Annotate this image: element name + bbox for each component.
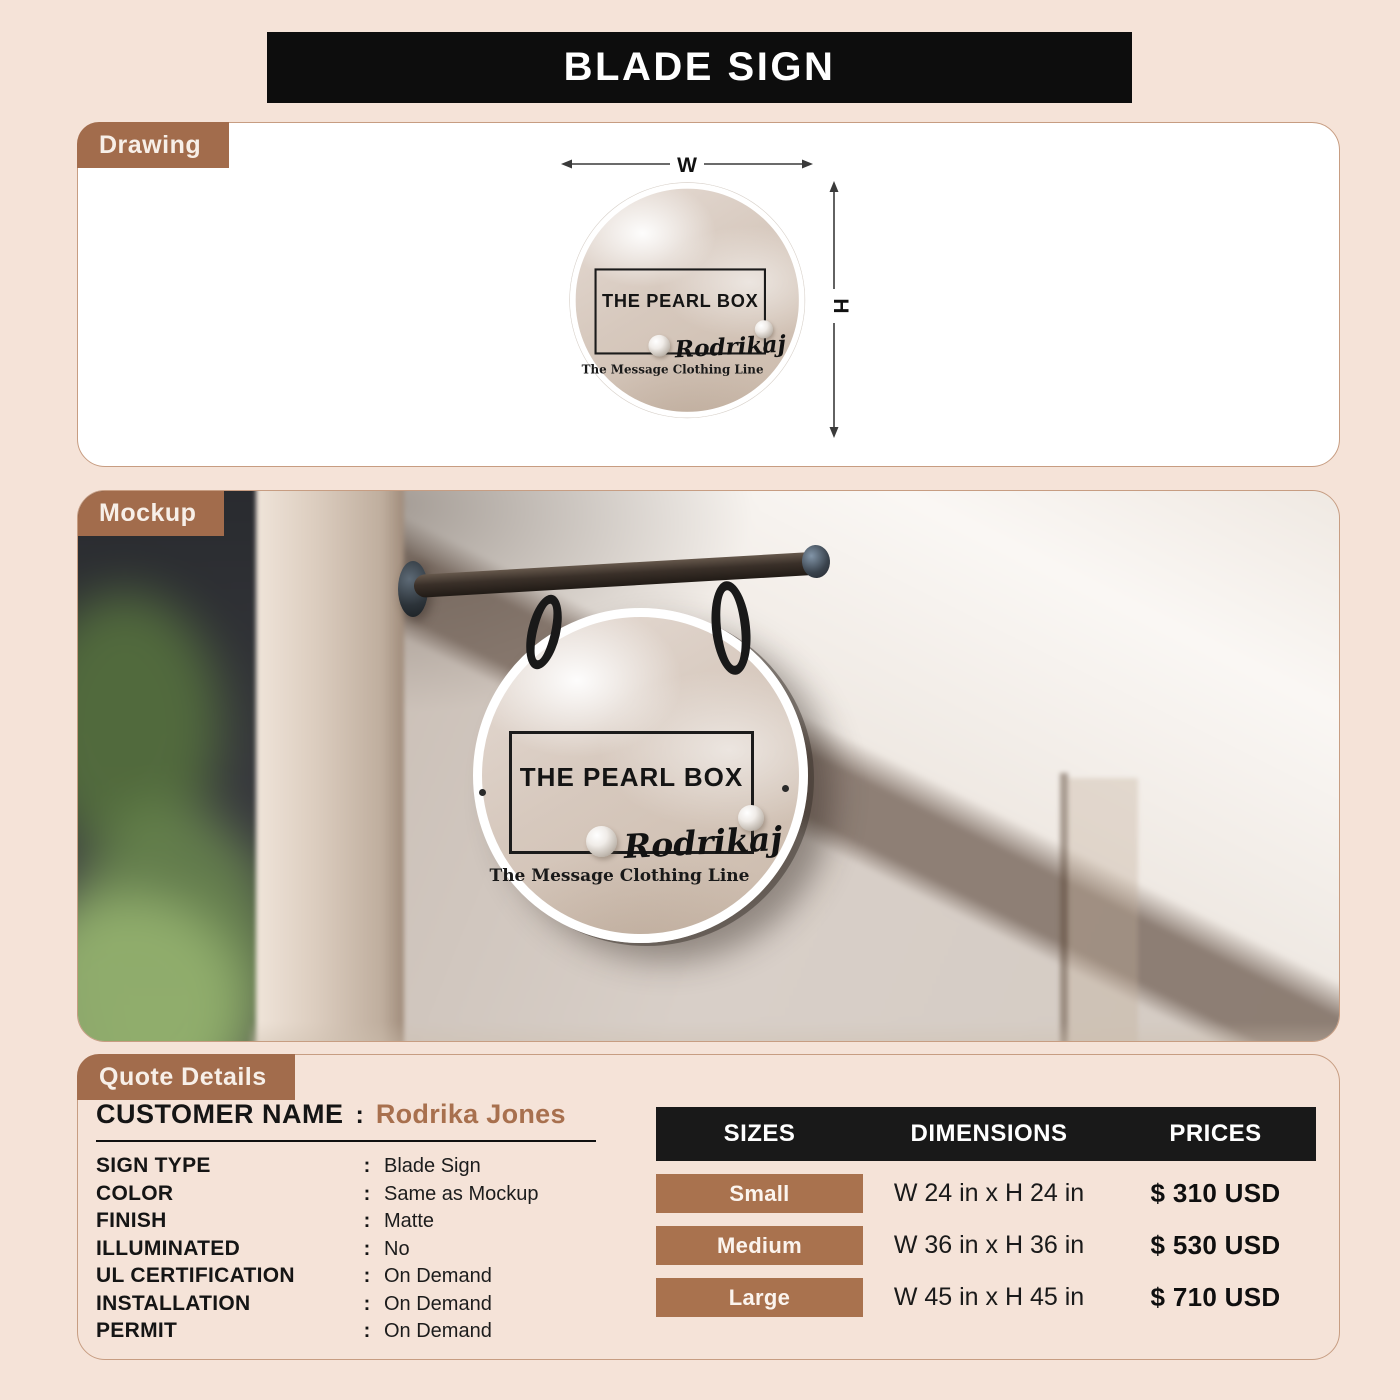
- spec-separator: :: [354, 1293, 380, 1315]
- owner-script-name: Rodrikaj: [663, 329, 797, 363]
- spec-separator: :: [354, 1238, 380, 1260]
- spec-separator: :: [354, 1320, 380, 1342]
- price-value: $ 310 USD: [1115, 1178, 1316, 1209]
- width-dimension-label: W: [677, 154, 697, 177]
- table-row: Large W 45 in x H 45 in $ 710 USD: [656, 1278, 1316, 1317]
- quote-tab-label: Quote Details: [99, 1063, 267, 1092]
- spec-value: No: [380, 1238, 539, 1260]
- mockup-panel: THE PEARL BOX Rodrikaj The Message Cloth…: [77, 490, 1340, 1042]
- table-row: Medium W 36 in x H 36 in $ 530 USD: [656, 1226, 1316, 1265]
- page-title: BLADE SIGN: [564, 45, 836, 90]
- customer-name-separator: :: [356, 1101, 364, 1130]
- drawing-panel: Drawing W H THE PEARL BOX Rodr: [77, 122, 1340, 467]
- door-frame: [1060, 773, 1068, 1042]
- size-badge: Small: [656, 1174, 863, 1213]
- drawing-section-tab: Drawing: [77, 122, 229, 168]
- sign-tagline: The Message Clothing Line: [576, 363, 770, 377]
- spec-label: INSTALLATION: [96, 1293, 354, 1315]
- title-banner: BLADE SIGN: [267, 32, 1132, 103]
- quote-section-tab: Quote Details: [77, 1054, 295, 1100]
- brand-name: THE PEARL BOX: [592, 290, 768, 312]
- sign-drawing: THE PEARL BOX Rodrikaj The Message Cloth…: [570, 183, 805, 418]
- spec-label: PERMIT: [96, 1320, 354, 1342]
- spec-separator: :: [354, 1155, 380, 1177]
- brand-name: THE PEARL BOX: [506, 762, 757, 793]
- column-header-prices: PRICES: [1115, 1120, 1316, 1148]
- price-value: $ 710 USD: [1115, 1282, 1316, 1313]
- spec-value: Matte: [380, 1210, 539, 1232]
- spec-label: ILLUMINATED: [96, 1238, 354, 1260]
- dimensions-value: W 45 in x H 45 in: [863, 1283, 1115, 1312]
- spec-value: Blade Sign: [380, 1155, 539, 1177]
- pricing-table: SIZES DIMENSIONS PRICES Small W 24 in x …: [656, 1107, 1316, 1330]
- spec-value: On Demand: [380, 1320, 539, 1342]
- dimensions-value: W 36 in x H 36 in: [863, 1231, 1115, 1260]
- height-dimension-label: H: [829, 298, 852, 313]
- spec-label: UL CERTIFICATION: [96, 1265, 354, 1287]
- mount-screw-icon: [782, 785, 789, 792]
- column-header-sizes: SIZES: [656, 1120, 863, 1148]
- spec-list: SIGN TYPE : Blade Sign COLOR : Same as M…: [96, 1155, 539, 1342]
- column-header-dimensions: DIMENSIONS: [863, 1120, 1115, 1148]
- spec-separator: :: [354, 1183, 380, 1205]
- floor: [250, 1022, 1340, 1042]
- spec-value: Same as Mockup: [380, 1183, 539, 1205]
- size-badge: Large: [656, 1278, 863, 1317]
- spec-label: COLOR: [96, 1183, 354, 1205]
- customer-name-value: Rodrika Jones: [376, 1099, 566, 1130]
- price-value: $ 530 USD: [1115, 1230, 1316, 1261]
- drawing-tab-label: Drawing: [99, 131, 201, 160]
- sign-face: THE PEARL BOX Rodrikaj The Message Cloth…: [570, 183, 805, 418]
- pricing-table-header: SIZES DIMENSIONS PRICES: [656, 1107, 1316, 1161]
- door-panel: [1068, 778, 1138, 1042]
- mount-screw-icon: [479, 789, 486, 796]
- quote-details-panel: Quote Details CUSTOMER NAME : Rodrika Jo…: [77, 1054, 1340, 1360]
- spec-separator: :: [354, 1265, 380, 1287]
- spec-label: FINISH: [96, 1210, 354, 1232]
- spec-value: On Demand: [380, 1293, 539, 1315]
- spec-separator: :: [354, 1210, 380, 1232]
- spec-value: On Demand: [380, 1265, 539, 1287]
- table-row: Small W 24 in x H 24 in $ 310 USD: [656, 1174, 1316, 1213]
- sign-face: THE PEARL BOX Rodrikaj The Message Cloth…: [473, 608, 808, 943]
- mockup-section-tab: Mockup: [77, 490, 224, 536]
- customer-name-label: CUSTOMER NAME: [96, 1099, 344, 1130]
- spec-label: SIGN TYPE: [96, 1155, 354, 1177]
- size-badge: Medium: [656, 1226, 863, 1265]
- mockup-tab-label: Mockup: [99, 499, 196, 528]
- sign-mockup: THE PEARL BOX Rodrikaj The Message Cloth…: [473, 608, 808, 943]
- dimensions-value: W 24 in x H 24 in: [863, 1179, 1115, 1208]
- blade-sign-quote-sheet: BLADE SIGN Drawing W H THE PEARL BOX: [0, 0, 1400, 1400]
- customer-name-row: CUSTOMER NAME : Rodrika Jones: [96, 1099, 596, 1142]
- sign-tagline: The Message Clothing Line: [482, 866, 757, 886]
- storefront-column: [256, 490, 404, 1042]
